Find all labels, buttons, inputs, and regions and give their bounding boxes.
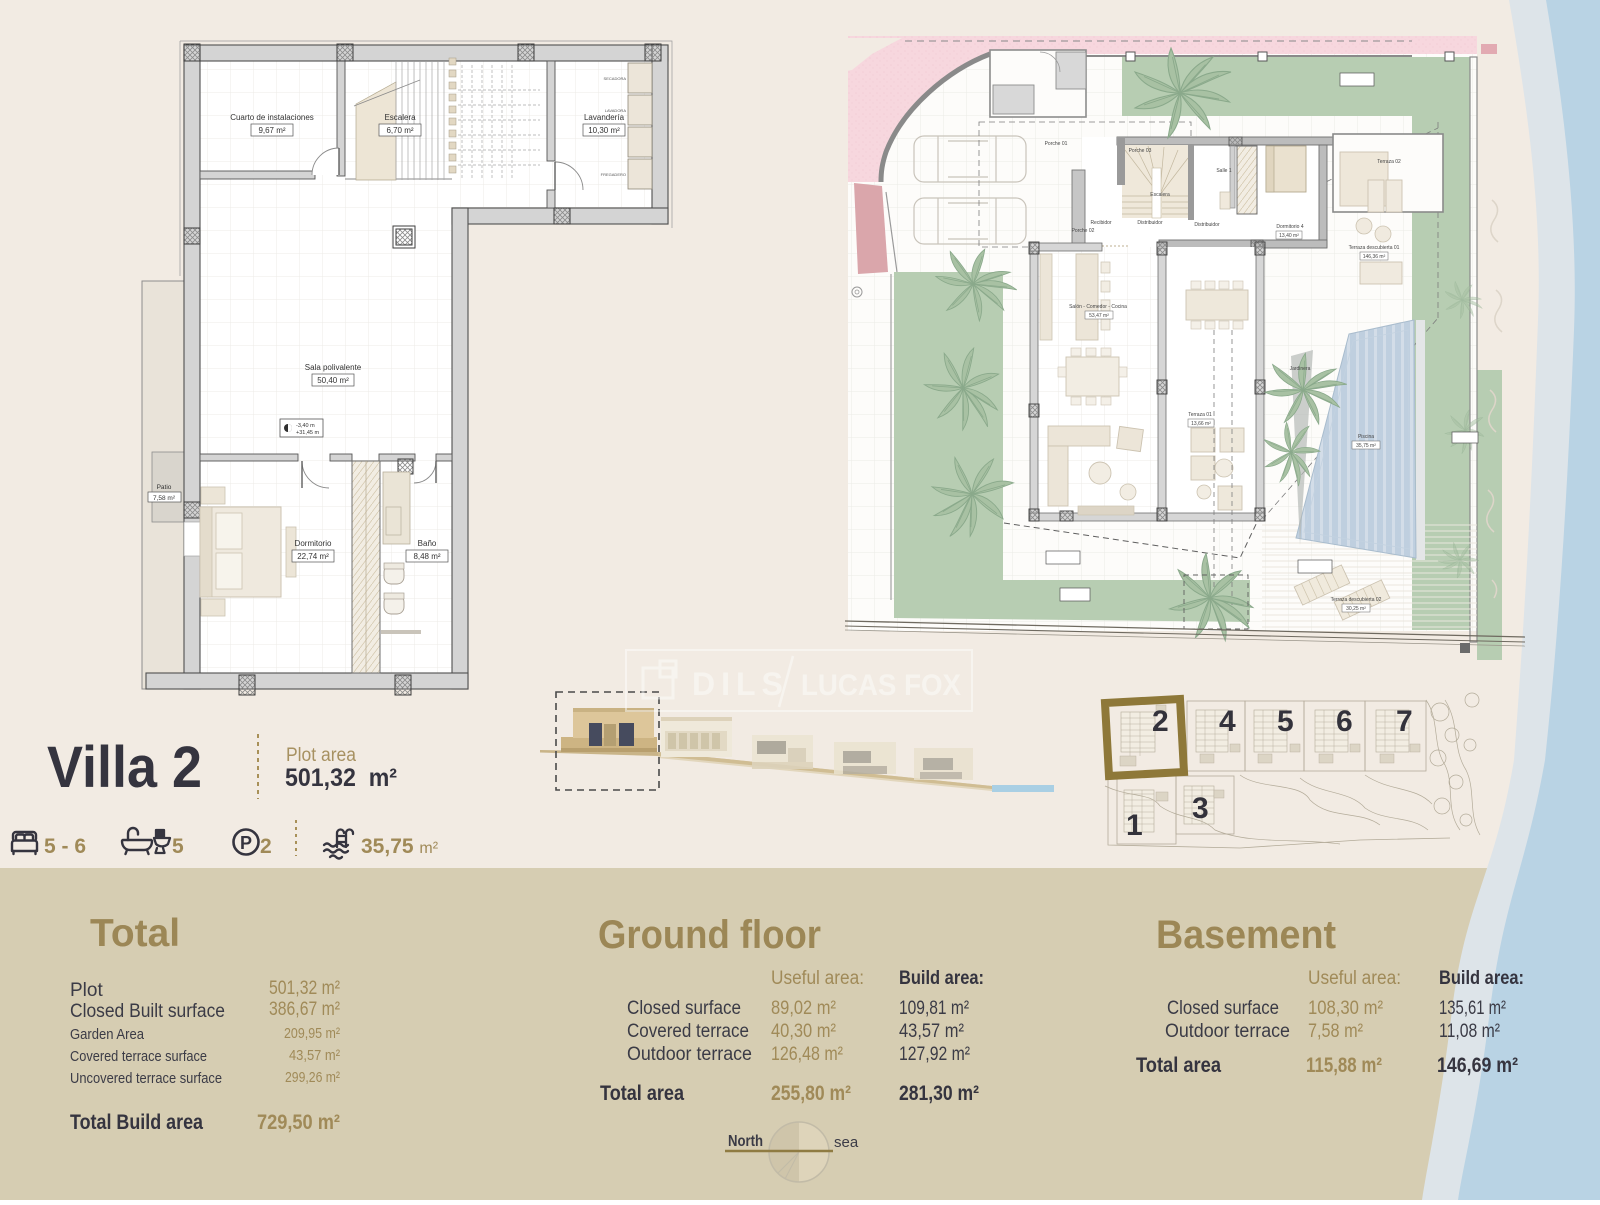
svg-text:40,30 m²: 40,30 m² <box>771 1021 836 1042</box>
svg-text:30,25 m²: 30,25 m² <box>1346 606 1366 612</box>
svg-text:115,88 m²: 115,88 m² <box>1306 1054 1382 1077</box>
svg-text:Sala polivalente: Sala polivalente <box>305 363 362 372</box>
svg-text:FREGADERO: FREGADERO <box>601 172 626 177</box>
svg-text:Useful area:: Useful area: <box>771 968 864 989</box>
svg-text:9,67 m²: 9,67 m² <box>258 126 285 135</box>
svg-text:3: 3 <box>1192 792 1209 825</box>
svg-text:Terraza descubierta 01: Terraza descubierta 01 <box>1349 245 1400 251</box>
svg-text:Porche 01: Porche 01 <box>1045 141 1068 147</box>
svg-text:43,57 m²: 43,57 m² <box>899 1021 964 1042</box>
svg-text:Terraza 01: Terraza 01 <box>1188 412 1212 418</box>
svg-text:108,30 m²: 108,30 m² <box>1308 998 1383 1019</box>
svg-text:Villa 2: Villa 2 <box>47 735 202 800</box>
svg-text:Escalera: Escalera <box>384 113 416 122</box>
svg-text:11,08 m²: 11,08 m² <box>1439 1021 1500 1042</box>
svg-text:127,92 m²: 127,92 m² <box>899 1044 970 1065</box>
svg-text:281,30 m²: 281,30 m² <box>899 1082 979 1105</box>
svg-text:209,95 m²: 209,95 m² <box>284 1025 340 1042</box>
svg-text:Distribuidor: Distribuidor <box>1137 220 1163 226</box>
svg-text:2: 2 <box>260 835 272 858</box>
svg-text:386,67 m²: 386,67 m² <box>269 999 340 1020</box>
svg-text:7,58 m²: 7,58 m² <box>153 495 176 502</box>
svg-text:1: 1 <box>1126 809 1143 842</box>
svg-text:5: 5 <box>1277 705 1294 738</box>
svg-text:Cuarto de instalaciones: Cuarto de instalaciones <box>230 113 314 122</box>
svg-text:Outdoor terrace: Outdoor terrace <box>1165 1021 1290 1042</box>
svg-text:Closed Built surface: Closed Built surface <box>70 1001 225 1022</box>
svg-text:Useful area:: Useful area: <box>1308 968 1401 989</box>
svg-text:Escalera: Escalera <box>1150 192 1170 198</box>
svg-text:Lavandería: Lavandería <box>584 113 625 122</box>
svg-text:Porche 03: Porche 03 <box>1129 148 1152 154</box>
svg-text:Covered terrace: Covered terrace <box>627 1021 749 1042</box>
svg-text:Build area:: Build area: <box>1439 968 1524 989</box>
svg-text:Salle 1: Salle 1 <box>1216 168 1232 174</box>
svg-text:Basement: Basement <box>1156 913 1336 957</box>
svg-text:-3,40 m: -3,40 m <box>296 423 315 429</box>
svg-text:Salón - Comedor - Cocina: Salón - Comedor - Cocina <box>1069 304 1127 310</box>
svg-text:Total area: Total area <box>1136 1054 1221 1077</box>
svg-text:Garden Area: Garden Area <box>70 1026 145 1043</box>
svg-text:Distribuidor: Distribuidor <box>1194 222 1220 228</box>
svg-text:10,30 m²: 10,30 m² <box>588 126 620 135</box>
svg-text:126,48 m²: 126,48 m² <box>771 1044 843 1065</box>
svg-text:sea: sea <box>834 1134 859 1151</box>
svg-text:53,47 m²: 53,47 m² <box>1089 313 1109 319</box>
svg-text:109,81 m²: 109,81 m² <box>899 998 969 1019</box>
svg-text:2: 2 <box>1152 705 1169 738</box>
svg-text:43,57 m²: 43,57 m² <box>289 1047 340 1064</box>
svg-text:Dormitorio 4: Dormitorio 4 <box>1276 224 1303 230</box>
svg-text:6: 6 <box>1336 705 1353 738</box>
svg-text:Ground floor: Ground floor <box>598 913 821 957</box>
svg-text:Patio: Patio <box>157 484 172 491</box>
svg-text:Closed surface: Closed surface <box>1167 998 1279 1019</box>
svg-text:501,32 m²: 501,32 m² <box>285 764 397 792</box>
svg-text:7: 7 <box>1396 705 1413 738</box>
svg-text:Plot area: Plot area <box>286 745 356 766</box>
svg-text:Total area: Total area <box>600 1082 684 1105</box>
svg-text:North: North <box>728 1133 763 1150</box>
svg-text:13,40 m²: 13,40 m² <box>1279 233 1299 239</box>
svg-text:+31,45 m: +31,45 m <box>296 430 320 436</box>
svg-text:7,58 m²: 7,58 m² <box>1308 1021 1363 1042</box>
svg-text:146,69 m²: 146,69 m² <box>1437 1054 1518 1077</box>
svg-text:Covered terrace surface: Covered terrace surface <box>70 1048 207 1065</box>
svg-text:Closed surface: Closed surface <box>627 998 741 1019</box>
svg-text:Total: Total <box>90 912 180 955</box>
svg-text:Dormitorio: Dormitorio <box>295 539 332 548</box>
svg-text:501,32 m²: 501,32 m² <box>269 978 340 999</box>
svg-text:89,02 m²: 89,02 m² <box>771 998 836 1019</box>
svg-text:Piscina: Piscina <box>1358 434 1374 440</box>
svg-text:Build area:: Build area: <box>899 968 984 989</box>
svg-text:6,70 m²: 6,70 m² <box>386 126 413 135</box>
svg-text:729,50 m²: 729,50 m² <box>257 1111 340 1134</box>
svg-text:Porche 02: Porche 02 <box>1072 228 1095 234</box>
svg-text:299,26 m²: 299,26 m² <box>285 1069 340 1086</box>
svg-text:Recibidor: Recibidor <box>1090 220 1111 226</box>
svg-text:35,75 m²: 35,75 m² <box>1356 443 1376 449</box>
svg-text:P: P <box>240 833 252 853</box>
svg-text:255,80 m²: 255,80 m² <box>771 1082 851 1105</box>
svg-text:135,61 m²: 135,61 m² <box>1439 998 1506 1019</box>
svg-text:Uncovered terrace surface: Uncovered terrace surface <box>70 1070 222 1087</box>
svg-text:13,66 m²: 13,66 m² <box>1191 421 1211 427</box>
svg-text:8,48 m²: 8,48 m² <box>413 552 440 561</box>
svg-text:Terraza 02: Terraza 02 <box>1377 159 1401 165</box>
svg-text:DILS: DILS <box>692 666 789 702</box>
svg-text:SECADORA: SECADORA <box>604 76 627 81</box>
svg-text:Outdoor terrace: Outdoor terrace <box>627 1044 752 1065</box>
svg-text:Baño: Baño <box>418 539 437 548</box>
svg-text:LUCAS FOX: LUCAS FOX <box>801 669 961 702</box>
svg-text:5 - 6: 5 - 6 <box>44 835 86 858</box>
svg-text:4: 4 <box>1219 705 1236 738</box>
svg-text:Jardinera: Jardinera <box>1290 366 1311 372</box>
svg-text:Plot: Plot <box>70 980 103 1001</box>
svg-text:50,40 m²: 50,40 m² <box>317 376 349 385</box>
svg-text:5: 5 <box>172 835 184 858</box>
svg-text:Terraza descubierta 02: Terraza descubierta 02 <box>1331 597 1382 603</box>
svg-text:22,74 m²: 22,74 m² <box>297 552 329 561</box>
svg-text:Total Build area: Total Build area <box>70 1111 203 1134</box>
svg-text:146,36 m²: 146,36 m² <box>1363 254 1386 260</box>
